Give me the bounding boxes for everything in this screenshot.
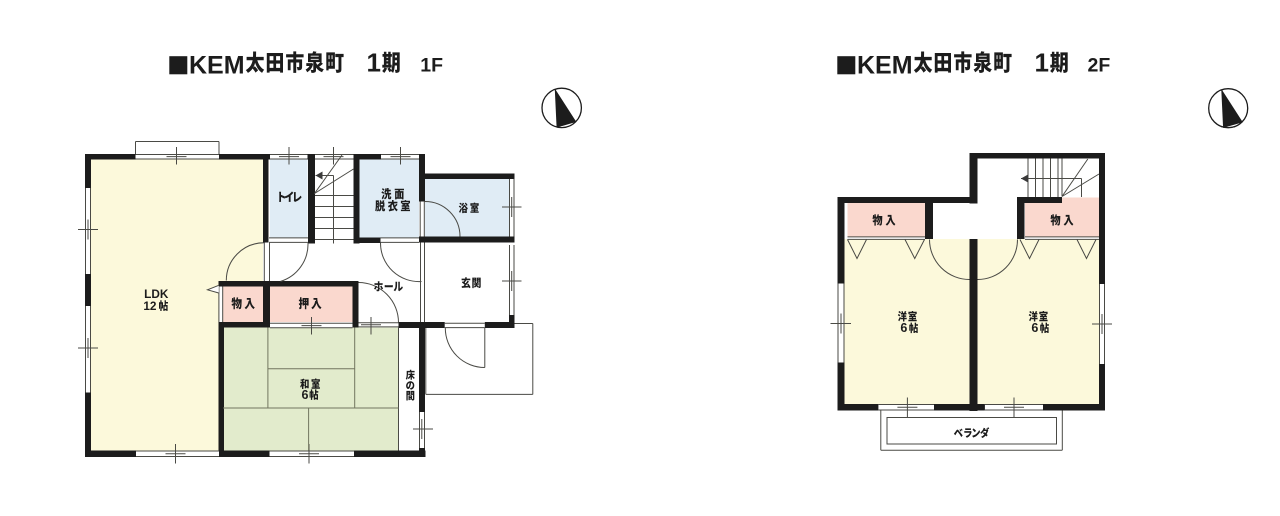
svg-text:1F: 1F [420,55,443,77]
svg-text:12: 12 [143,299,157,313]
svg-text:KEM: KEM [857,52,913,80]
svg-text:KEM: KEM [189,52,245,80]
svg-text:6: 6 [302,388,309,402]
svg-text:1: 1 [1035,48,1049,78]
svg-text:6: 6 [1031,321,1038,335]
svg-text:6: 6 [900,321,907,335]
svg-text:2F: 2F [1088,55,1111,77]
svg-text:1: 1 [367,48,381,78]
